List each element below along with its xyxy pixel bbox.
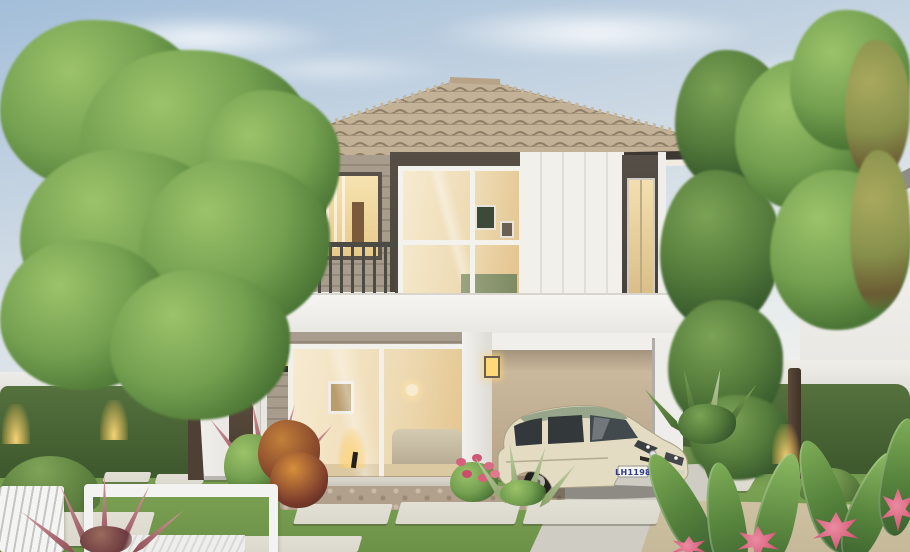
picture-frame [475,205,496,230]
side-window [548,415,584,444]
tropical-foreground-bed [655,408,910,552]
garden-uplight [100,400,128,440]
upper-board-wall [520,152,624,304]
window-mullion [470,171,475,303]
foliage-blob [500,480,546,506]
croton-blob [270,452,328,508]
paver-slab [395,502,521,524]
agave-plant [492,452,556,504]
door-divider [379,349,384,483]
carport-shadow [492,350,654,372]
upper-big-window [398,166,524,308]
pink-blooms [456,458,466,466]
interior-furniture [352,202,364,246]
foliage-blob [110,270,290,420]
house-exterior-scene: LH1198 [0,0,910,552]
upper-right-tall-window [627,178,655,300]
cordyline-base [80,526,132,552]
foliage-blob [850,150,910,310]
window-mullion [640,180,642,298]
window-mullion [403,240,519,245]
roof-ridge-cap [450,80,500,82]
license-plate-text: LH1198 [615,468,651,477]
garden-lounge-chair [0,486,64,552]
garden-uplight [2,404,30,444]
cordyline-plant-front [58,486,154,552]
carport-small-window [484,356,500,378]
picture-frame [500,221,514,238]
